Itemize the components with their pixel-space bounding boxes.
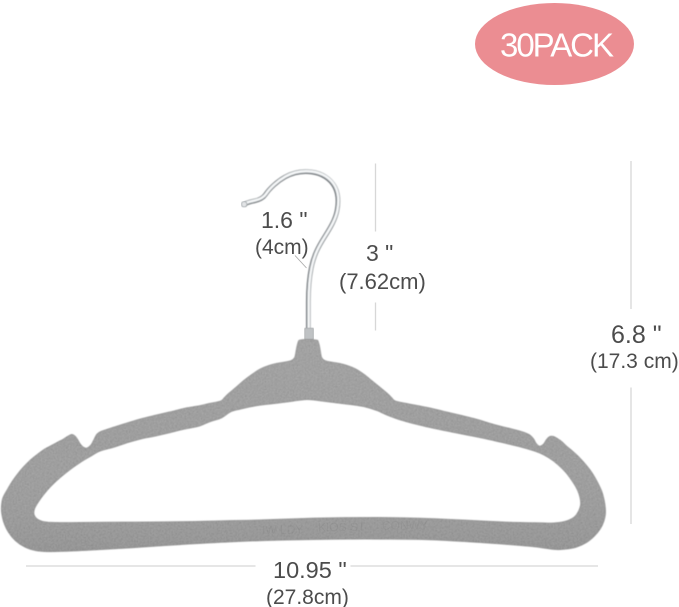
svg-text:30PACK: 30PACK: [500, 27, 614, 64]
svg-text:CONWY: CONWY: [382, 518, 428, 533]
svg-text:3 ": 3 ": [366, 240, 393, 266]
svg-text:1.6 ": 1.6 ": [261, 207, 308, 233]
svg-text:(17.3 cm): (17.3 cm): [590, 350, 679, 373]
svg-text:10.95 ": 10.95 ": [273, 557, 347, 583]
svg-text:(7.62cm): (7.62cm): [339, 269, 426, 294]
svg-text:6.8 ": 6.8 ": [611, 321, 662, 349]
svg-text:IW LDY: IW LDY: [262, 523, 304, 538]
svg-text:KIOS ST: KIOS ST: [318, 520, 366, 535]
svg-text:(4cm): (4cm): [255, 236, 309, 259]
svg-text:(27.8cm): (27.8cm): [266, 586, 349, 607]
